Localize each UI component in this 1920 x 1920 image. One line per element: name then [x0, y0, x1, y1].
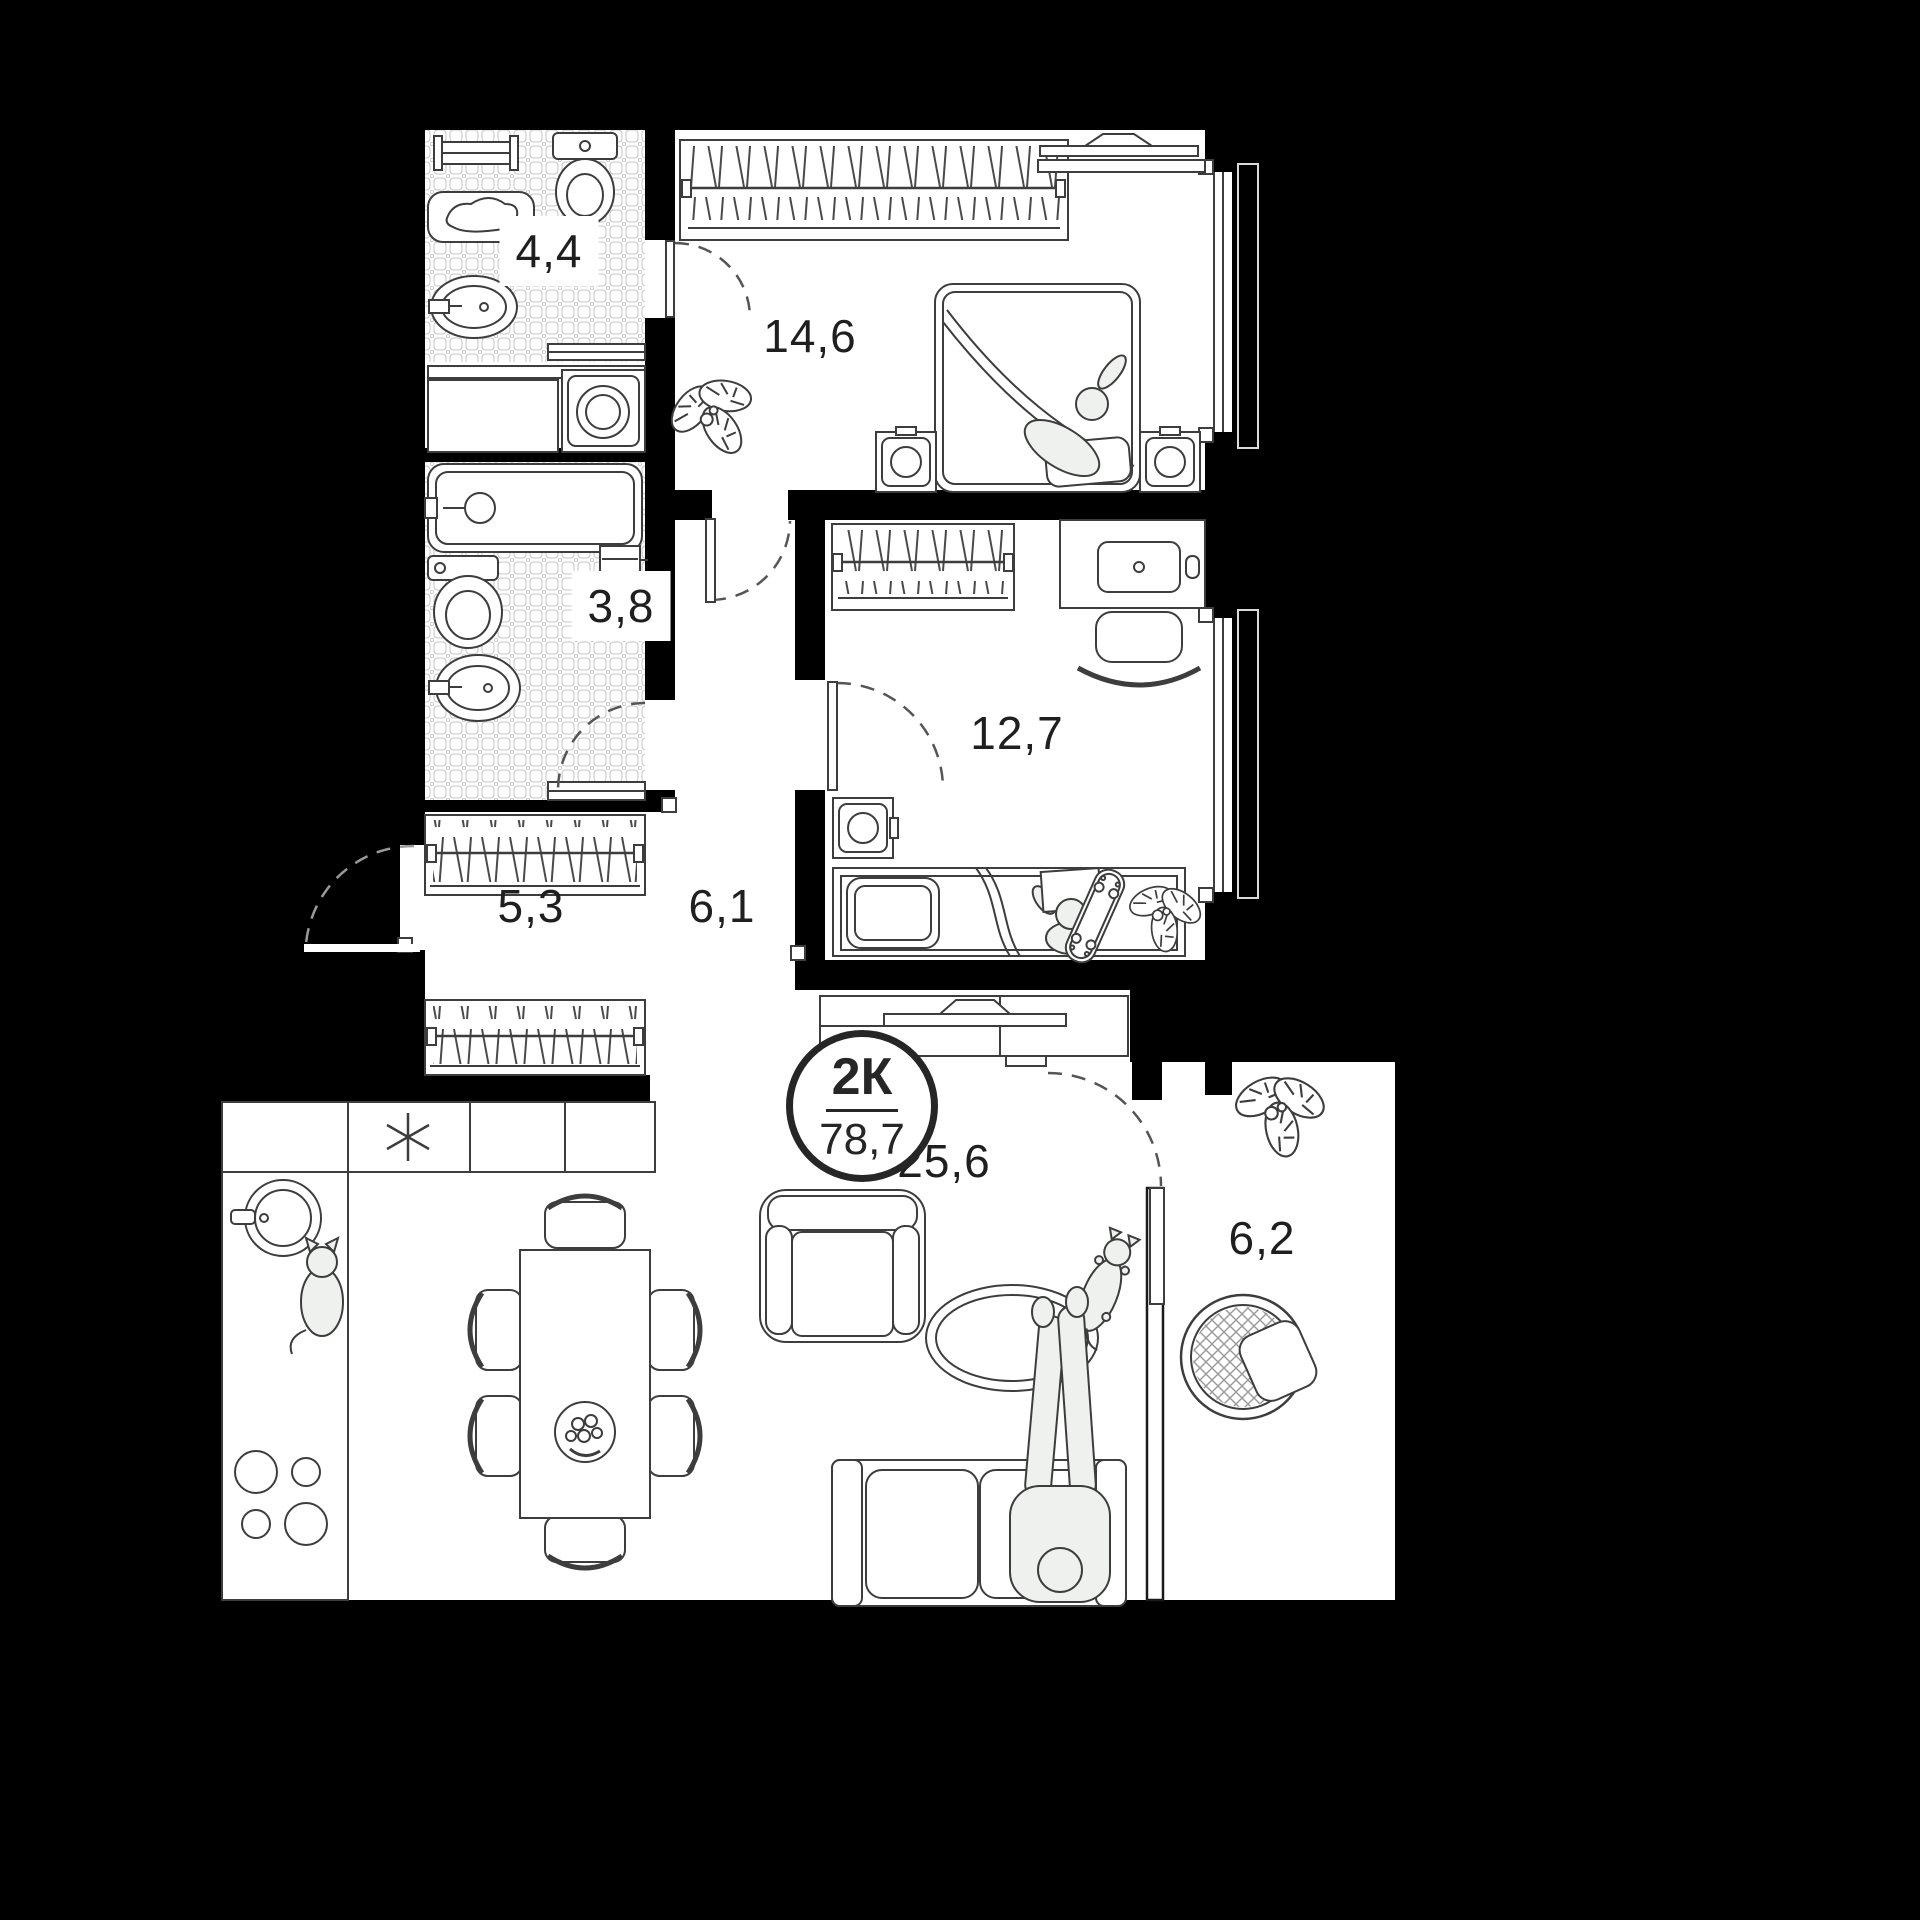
- apartment-total-area: 78,7: [819, 1118, 905, 1162]
- chair-icon: [648, 1290, 700, 1370]
- room-label-bedroom-second: 12,7: [970, 706, 1064, 760]
- cabinet-icon: [428, 380, 558, 452]
- chair-icon: [648, 1396, 700, 1476]
- nightstand-icon: [876, 427, 936, 492]
- floor-plan: 4,4 14,6 3,8 12,7 5,3 6,1 25,6 6,2 2К 78…: [0, 0, 1920, 1920]
- dining-table-icon: [520, 1250, 650, 1518]
- room-label-bathroom-large: 3,8: [572, 571, 671, 641]
- room-label-balcony: 6,2: [1229, 1211, 1296, 1265]
- armchair-icon: [760, 1190, 925, 1342]
- apartment-type: 2К: [832, 1051, 893, 1103]
- room-label-hallway: 5,3: [498, 879, 565, 933]
- wardrobe-icon: [680, 140, 1068, 240]
- door-leaf: [304, 944, 420, 952]
- balcony-partition: [1147, 1188, 1164, 1600]
- toilet-icon: [553, 133, 617, 225]
- nightstand-icon: [1140, 427, 1200, 492]
- nightstand-icon: [833, 798, 898, 858]
- shelf-icon: [548, 782, 645, 800]
- wardrobe-icon: [832, 524, 1014, 610]
- window-bedroom-master: [1205, 164, 1258, 448]
- fruit-bowl-icon: [555, 1402, 615, 1462]
- laundry-fixtures: [428, 366, 645, 452]
- washing-machine-icon: [562, 370, 645, 452]
- door-leaf: [666, 241, 674, 317]
- room-label-bedroom-master: 14,6: [763, 309, 857, 363]
- door-leaf: [828, 682, 837, 790]
- chair-icon: [545, 1196, 625, 1248]
- wardrobe-icon: [425, 1000, 645, 1075]
- badge-divider: [826, 1109, 898, 1112]
- chair-icon: [470, 1396, 522, 1476]
- room-label-bathroom-small: 4,4: [500, 216, 599, 286]
- door-arc: [306, 846, 414, 944]
- door-leaf: [1150, 1188, 1164, 1304]
- apartment-type-badge: 2К 78,7: [786, 1030, 938, 1182]
- chair-icon: [545, 1516, 625, 1568]
- shelf-icon: [548, 344, 645, 360]
- desk-icon: [1060, 520, 1205, 608]
- door-leaf: [706, 519, 715, 602]
- bed-icon: [935, 284, 1140, 492]
- room-label-corridor: 6,1: [689, 879, 756, 933]
- floor-plan-svg: [0, 0, 1920, 1920]
- towel-rail-icon: [434, 136, 518, 170]
- bathtub-icon: [425, 464, 642, 552]
- chair-icon: [470, 1290, 522, 1370]
- window-bedroom-second: [1205, 610, 1258, 898]
